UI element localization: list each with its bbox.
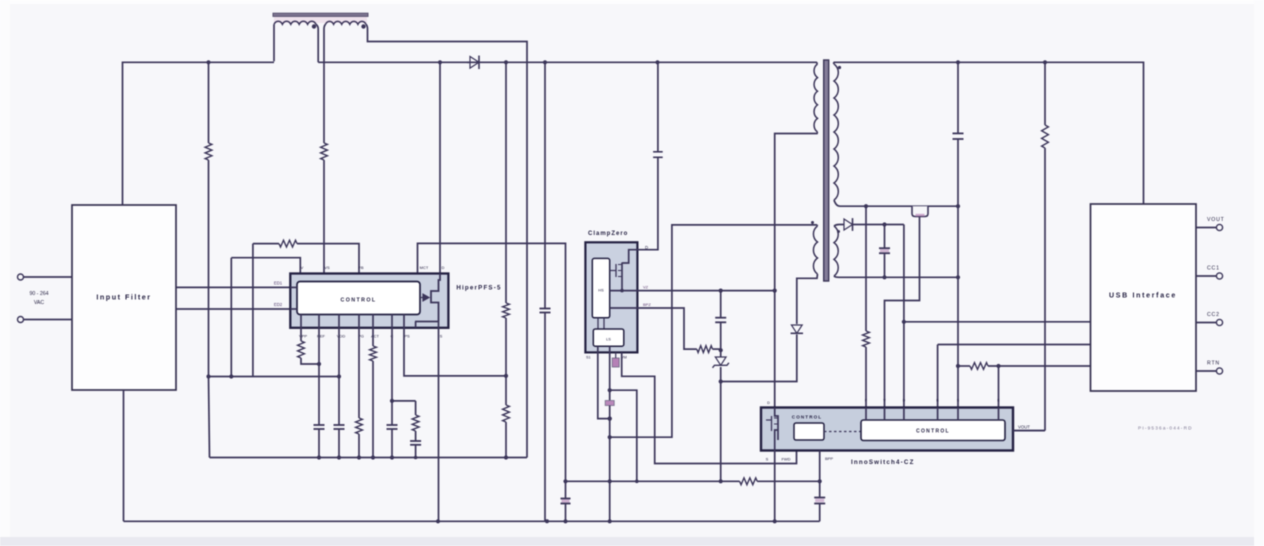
svg-text:InnoSwitch4-CZ: InnoSwitch4-CZ xyxy=(851,459,915,466)
svg-text:BPP: BPP xyxy=(825,456,833,461)
svg-text:MCT: MCT xyxy=(420,265,429,270)
svg-text:RTN: RTN xyxy=(1207,361,1220,367)
svg-text:S1: S1 xyxy=(586,355,591,359)
svg-text:CC2: CC2 xyxy=(1207,312,1220,318)
svg-text:ClampZero: ClampZero xyxy=(588,231,628,237)
svg-text:Input Filter: Input Filter xyxy=(96,293,151,302)
svg-text:VOUT: VOUT xyxy=(1207,217,1225,223)
svg-text:V: V xyxy=(301,265,304,270)
svg-text:VS: VS xyxy=(324,265,330,270)
svg-text:D: D xyxy=(767,401,770,405)
svg-text:VDD: VDD xyxy=(337,334,346,339)
svg-text:CONTROL: CONTROL xyxy=(341,297,377,303)
svg-text:FB: FB xyxy=(358,265,363,270)
svg-text:CONTROL: CONTROL xyxy=(916,429,950,435)
svg-text:FWD: FWD xyxy=(781,456,790,461)
svg-text:VOUT: VOUT xyxy=(1018,424,1030,429)
svg-text:VAC: VAC xyxy=(34,300,45,306)
svg-text:HS: HS xyxy=(598,288,604,293)
svg-text:90 - 264: 90 - 264 xyxy=(29,291,48,297)
svg-text:USB Interface: USB Interface xyxy=(1109,293,1177,300)
svg-text:BPZ: BPZ xyxy=(643,302,651,307)
svg-text:CONTROL: CONTROL xyxy=(792,415,822,420)
svg-text:S: S xyxy=(440,334,443,339)
svg-text:S: S xyxy=(766,456,769,461)
svg-text:ED2: ED2 xyxy=(274,302,283,307)
svg-text:PS: PS xyxy=(404,334,410,339)
svg-text:VZ: VZ xyxy=(643,285,649,290)
svg-text:LS: LS xyxy=(606,336,611,341)
svg-text:ED1: ED1 xyxy=(274,281,283,286)
svg-text:D: D xyxy=(903,399,906,403)
svg-text:CC1: CC1 xyxy=(1207,266,1220,272)
svg-text:HiperPFS-5: HiperPFS-5 xyxy=(456,285,501,292)
svg-text:PI-9536a-044-RD: PI-9536a-044-RD xyxy=(1138,426,1193,431)
svg-text:D: D xyxy=(442,265,445,270)
